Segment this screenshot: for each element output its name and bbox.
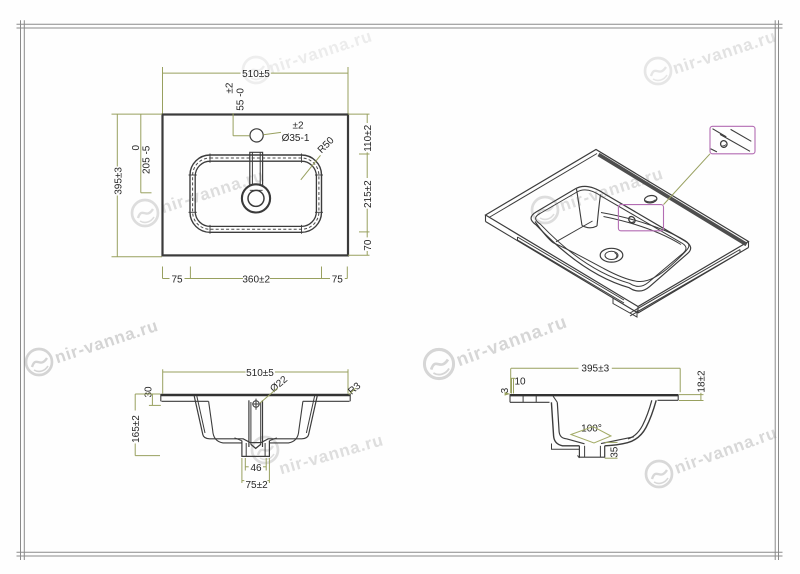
svg-text:165±2: 165±2	[131, 415, 142, 443]
svg-text:±2: ±2	[224, 82, 235, 93]
svg-text:30: 30	[144, 386, 155, 398]
svg-text:75: 75	[171, 275, 183, 286]
svg-text:35: 35	[610, 446, 621, 458]
svg-text:215±2: 215±2	[363, 180, 374, 208]
svg-text:110±2: 110±2	[363, 124, 374, 151]
svg-text:nir-vanna.ru: nir-vanna.ru	[277, 430, 386, 478]
svg-text:nir-vanna.ru: nir-vanna.ru	[52, 316, 160, 367]
svg-text:510±5: 510±5	[242, 69, 270, 80]
svg-text:nir-vanna.ru: nir-vanna.ru	[453, 311, 570, 371]
svg-text:±2: ±2	[292, 121, 303, 132]
svg-text:360±2: 360±2	[242, 275, 270, 286]
svg-text:46: 46	[250, 463, 262, 474]
svg-text:75: 75	[332, 275, 344, 286]
svg-text:nir-vanna.ru: nir-vanna.ru	[672, 423, 780, 478]
svg-text:55 -0: 55 -0	[236, 88, 247, 111]
svg-text:Ø35-1: Ø35-1	[282, 133, 310, 144]
svg-text:395±3: 395±3	[113, 167, 124, 195]
svg-text:100°: 100°	[581, 423, 602, 434]
svg-text:0: 0	[131, 145, 142, 151]
svg-text:R50: R50	[316, 135, 337, 156]
svg-text:10: 10	[515, 376, 527, 387]
svg-text:510±5: 510±5	[246, 368, 274, 379]
svg-text:nir-vanna.ru: nir-vanna.ru	[266, 26, 374, 77]
svg-text:395±3: 395±3	[581, 363, 609, 374]
svg-text:nir-vanna.ru: nir-vanna.ru	[670, 27, 778, 78]
svg-text:18±2: 18±2	[697, 370, 708, 393]
svg-text:70: 70	[363, 239, 374, 251]
svg-text:75±2: 75±2	[246, 480, 269, 491]
svg-text:205 -5: 205 -5	[142, 145, 153, 174]
